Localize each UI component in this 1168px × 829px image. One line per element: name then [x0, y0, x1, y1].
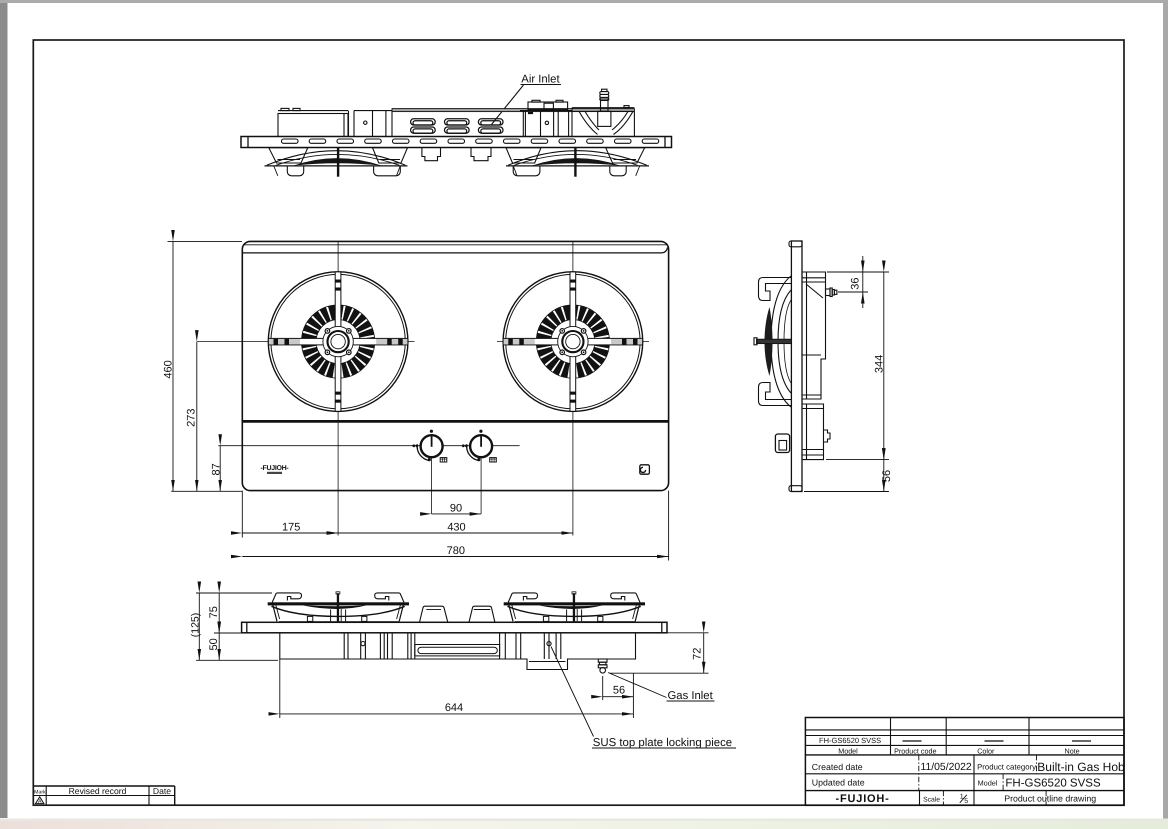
svg-text:Model: Model	[838, 747, 858, 756]
svg-text:Gas Inlet: Gas Inlet	[668, 690, 714, 702]
svg-text:-FUJIOH-: -FUJIOH-	[836, 793, 890, 805]
svg-text:Revised record: Revised record	[69, 786, 127, 796]
svg-text:Product outline drawing: Product outline drawing	[1004, 794, 1096, 804]
svg-text:75: 75	[208, 606, 220, 618]
svg-text:344: 344	[873, 355, 885, 373]
svg-text:FH-GS6520 SVSS: FH-GS6520 SVSS	[819, 736, 881, 745]
svg-text:Built-in Gas Hob: Built-in Gas Hob	[1037, 760, 1125, 774]
svg-text:-FUJIOH-: -FUJIOH-	[261, 465, 290, 472]
svg-text:87: 87	[210, 463, 222, 475]
svg-text:273: 273	[185, 409, 197, 427]
svg-text:Updated date: Updated date	[812, 778, 865, 788]
svg-text:36: 36	[849, 277, 861, 289]
svg-text:Note: Note	[1065, 747, 1080, 756]
svg-text:72: 72	[692, 648, 704, 660]
svg-text:Color: Color	[977, 747, 995, 756]
svg-text:780: 780	[447, 545, 465, 557]
svg-text:Date: Date	[153, 786, 171, 796]
svg-text:11/05/2022: 11/05/2022	[920, 762, 971, 773]
svg-text:Scale: Scale	[923, 796, 940, 803]
svg-text:FH-GS6520 SVSS: FH-GS6520 SVSS	[1005, 777, 1101, 789]
svg-text:644: 644	[445, 702, 463, 714]
svg-text:Mark: Mark	[34, 790, 46, 796]
svg-text:56: 56	[613, 684, 625, 696]
svg-text:430: 430	[447, 521, 465, 533]
svg-text:Model: Model	[978, 778, 998, 787]
svg-text:90: 90	[450, 502, 462, 514]
svg-text:5: 5	[964, 798, 968, 805]
svg-text:Air Inlet: Air Inlet	[521, 74, 560, 86]
svg-text:(125): (125)	[190, 613, 202, 638]
svg-text:Created date: Created date	[812, 762, 863, 772]
svg-text:Product code: Product code	[894, 747, 936, 756]
svg-text:A: A	[38, 799, 42, 805]
svg-text:175: 175	[282, 521, 300, 533]
svg-text:SUS top plate locking piece: SUS top plate locking piece	[593, 737, 732, 749]
svg-text:50: 50	[208, 638, 220, 650]
svg-text:460: 460	[162, 360, 174, 378]
svg-text:Product category: Product category	[977, 763, 1036, 772]
svg-text:56: 56	[881, 470, 893, 482]
